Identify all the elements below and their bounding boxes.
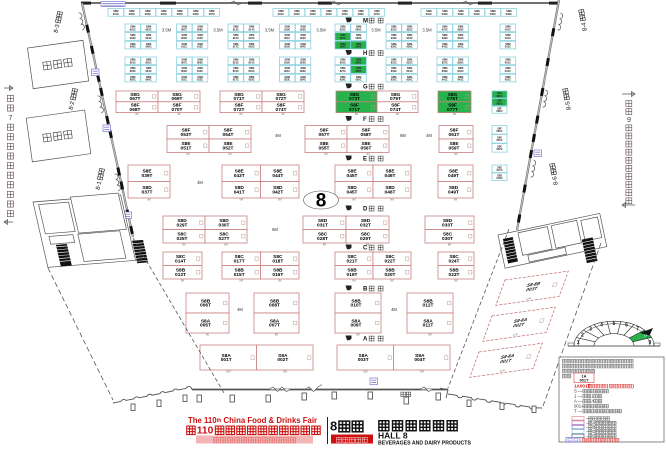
svg-text:8M: 8M: [356, 334, 359, 337]
svg-text:081C: 081C: [496, 102, 502, 106]
svg-text:008T: 008T: [269, 303, 280, 309]
svg-text:046T: 046T: [385, 173, 396, 179]
svg-text:833C: 833C: [391, 69, 397, 73]
svg-text:D: D: [363, 206, 368, 212]
svg-text:021T: 021T: [347, 258, 358, 264]
svg-text:002C: 002C: [129, 12, 135, 16]
svg-text:822C: 822C: [300, 69, 306, 73]
svg-text:8M: 8M: [135, 113, 138, 116]
svg-text:003C: 003C: [145, 12, 151, 16]
svg-text:082C: 082C: [496, 109, 502, 113]
svg-text:067T: 067T: [130, 96, 141, 102]
svg-text:6M: 6M: [272, 227, 278, 232]
svg-text:824C: 824C: [300, 78, 306, 82]
svg-text:8: 8: [330, 419, 337, 434]
svg-text:001C: 001C: [505, 45, 511, 49]
svg-text:8M: 8M: [177, 113, 180, 116]
svg-text:931C: 931C: [391, 27, 397, 31]
svg-text:5: 5: [613, 321, 616, 327]
svg-text:057T: 057T: [319, 132, 330, 138]
svg-text:033T: 033T: [442, 222, 453, 228]
svg-text:005C: 005C: [342, 12, 348, 16]
svg-text:8M: 8M: [454, 153, 457, 156]
svg-text:808C: 808C: [197, 60, 203, 64]
svg-text:8M: 8M: [278, 280, 281, 283]
svg-text:807C: 807C: [181, 60, 187, 64]
svg-text:8: 8: [316, 191, 327, 212]
svg-text:006T: 006T: [200, 303, 211, 309]
svg-text:3.5M: 3.5M: [162, 28, 172, 33]
svg-text:8M: 8M: [278, 199, 281, 202]
svg-text:923C: 923C: [284, 45, 290, 49]
svg-text:013T: 013T: [175, 272, 186, 278]
svg-text:072T: 072T: [234, 107, 245, 113]
svg-text:071T: 071T: [234, 96, 245, 102]
svg-text:3.5M: 3.5M: [316, 28, 326, 33]
svg-text:075T: 075T: [447, 96, 458, 102]
svg-text:805C: 805C: [130, 78, 136, 82]
svg-text:043T: 043T: [234, 173, 245, 179]
svg-text:046T: 046T: [385, 189, 396, 195]
svg-text:077T: 077T: [447, 107, 458, 113]
svg-text:031T: 031T: [317, 222, 328, 228]
svg-text:902C: 902C: [145, 27, 151, 31]
svg-text:816C: 816C: [248, 69, 254, 73]
svg-text:056T: 056T: [361, 145, 372, 151]
svg-text:014T: 014T: [175, 258, 186, 264]
svg-text:074T: 074T: [276, 107, 287, 113]
svg-text:8M: 8M: [240, 199, 243, 202]
svg-text:829C: 829C: [340, 78, 346, 82]
svg-text:007C: 007C: [209, 12, 215, 16]
svg-text:825C: 825C: [340, 60, 346, 64]
svg-text:929C: 929C: [340, 45, 346, 49]
svg-text:058T: 058T: [361, 132, 372, 138]
svg-text:8M: 8M: [390, 199, 393, 202]
svg-text:003C: 003C: [310, 12, 316, 16]
svg-text:011T: 011T: [423, 323, 434, 329]
svg-text:041T: 041T: [234, 189, 245, 195]
svg-text:T —: T —: [574, 409, 583, 414]
svg-text:820C: 820C: [300, 60, 306, 64]
svg-text:030T: 030T: [219, 222, 230, 228]
svg-text:012T: 012T: [423, 303, 434, 309]
svg-text:937C: 937C: [442, 27, 448, 31]
svg-text:939C: 939C: [442, 36, 448, 40]
svg-text:12M: 12M: [419, 371, 424, 374]
svg-text:941C: 941C: [442, 45, 448, 49]
svg-text:4: 4: [600, 323, 603, 329]
svg-text:072T: 072T: [276, 96, 287, 102]
svg-text:823C: 823C: [284, 78, 290, 82]
svg-text:8M: 8M: [352, 280, 355, 283]
svg-text:007C: 007C: [374, 12, 380, 16]
svg-text:836C: 836C: [406, 78, 412, 82]
svg-text:010T: 010T: [351, 303, 362, 309]
svg-text:079T: 079T: [390, 96, 401, 102]
svg-text:8M: 8M: [181, 280, 184, 283]
svg-text:045T: 045T: [347, 173, 358, 179]
svg-text:830C: 830C: [355, 78, 361, 82]
svg-text:004C: 004C: [326, 12, 332, 16]
svg-text:801C: 801C: [130, 60, 136, 64]
svg-text:8M: 8M: [448, 244, 451, 247]
svg-text:841C: 841C: [442, 78, 448, 82]
svg-text:838C: 838C: [457, 60, 463, 64]
svg-text:809C: 809C: [181, 69, 187, 73]
svg-text:073T: 073T: [349, 96, 360, 102]
svg-text:028T: 028T: [317, 236, 328, 242]
svg-text:8M: 8M: [453, 113, 456, 116]
svg-text:821C: 821C: [284, 69, 290, 73]
svg-text:8M: 8M: [275, 334, 278, 337]
svg-text:8M: 8M: [224, 244, 227, 247]
svg-text:811C: 811C: [181, 78, 187, 82]
svg-text:8M: 8M: [281, 113, 284, 116]
svg-text:A: A: [363, 336, 368, 342]
svg-text:071T: 071T: [349, 107, 360, 113]
svg-text:062C: 062C: [496, 147, 502, 151]
svg-text:914C: 914C: [248, 27, 254, 31]
svg-text:069T: 069T: [172, 96, 183, 102]
svg-text:3.5M: 3.5M: [371, 28, 381, 33]
svg-text:027T: 027T: [219, 236, 230, 242]
svg-text:001C: 001C: [505, 78, 511, 82]
svg-text:001C: 001C: [113, 12, 119, 16]
svg-text:901C: 901C: [130, 27, 136, 31]
svg-text:020T: 020T: [385, 272, 396, 278]
svg-text:936C: 936C: [406, 45, 412, 49]
svg-text:3.5M: 3.5M: [422, 28, 432, 33]
svg-text:005C: 005C: [490, 12, 496, 16]
svg-text:904C: 904C: [145, 36, 151, 40]
svg-text:8M: 8M: [240, 280, 243, 283]
svg-text:911C: 911C: [181, 45, 187, 49]
svg-text:001T: 001T: [221, 357, 232, 363]
svg-text:001C: 001C: [278, 12, 284, 16]
svg-text:3.5M: 3.5M: [213, 28, 223, 33]
svg-text:917C: 917C: [233, 45, 239, 49]
svg-text:835C: 835C: [391, 78, 397, 82]
svg-text:003C: 003C: [458, 12, 464, 16]
svg-text:6M: 6M: [400, 133, 406, 138]
svg-text:023T: 023T: [449, 272, 460, 278]
svg-text:903C: 903C: [130, 36, 136, 40]
svg-text:052T: 052T: [223, 145, 234, 151]
svg-text:8M: 8M: [182, 244, 185, 247]
svg-text:927C: 927C: [340, 36, 346, 40]
svg-text:933C: 933C: [391, 36, 397, 40]
svg-text:061T: 061T: [449, 132, 460, 138]
svg-text:915C: 915C: [233, 36, 239, 40]
svg-text:001C: 001C: [505, 60, 511, 64]
svg-text:913C: 913C: [233, 27, 239, 31]
svg-text:925C: 925C: [340, 27, 346, 31]
svg-text:029T: 029T: [177, 222, 188, 228]
svg-text:022T: 022T: [385, 258, 396, 264]
svg-text:4M: 4M: [197, 180, 203, 185]
svg-text:918C: 918C: [248, 45, 254, 49]
svg-text:935C: 935C: [391, 45, 397, 49]
svg-text:826C: 826C: [355, 60, 361, 64]
svg-text:926C: 926C: [355, 27, 361, 31]
svg-text:7: 7: [8, 113, 12, 122]
svg-text:006C: 006C: [506, 12, 512, 16]
svg-text:048C: 048C: [496, 176, 502, 180]
svg-text:919C: 919C: [284, 27, 290, 31]
svg-text:G: G: [363, 84, 368, 90]
svg-text:042T: 042T: [272, 189, 283, 195]
svg-text:938C: 938C: [457, 27, 463, 31]
svg-text:017T: 017T: [234, 258, 245, 264]
svg-text:The 110th China Food & Drinks: The 110th China Food & Drinks Fair: [188, 416, 317, 425]
svg-text:4M: 4M: [237, 307, 243, 312]
svg-text:001C: 001C: [426, 12, 432, 16]
svg-text:E: E: [363, 156, 367, 162]
svg-text:834C: 834C: [406, 69, 412, 73]
svg-text:818C: 818C: [248, 78, 254, 82]
svg-text:059T: 059T: [449, 145, 460, 151]
svg-text:813C: 813C: [233, 60, 239, 64]
svg-text:928C: 928C: [355, 36, 361, 40]
svg-text:053T: 053T: [181, 132, 192, 138]
svg-text:910C: 910C: [197, 36, 203, 40]
svg-text:4M: 4M: [275, 133, 281, 138]
svg-text:828C: 828C: [355, 69, 361, 73]
svg-text:840C: 840C: [457, 69, 463, 73]
svg-text:942C: 942C: [457, 45, 463, 49]
svg-text:842C: 842C: [457, 78, 463, 82]
svg-text:810C: 810C: [197, 69, 203, 73]
svg-text:070T: 070T: [172, 107, 183, 113]
svg-text:004T: 004T: [414, 357, 425, 363]
svg-text:H: H: [363, 51, 367, 57]
svg-text:832C: 832C: [406, 60, 412, 64]
svg-text:932C: 932C: [406, 27, 412, 31]
svg-text:004C: 004C: [474, 12, 480, 16]
svg-text:8M: 8M: [390, 280, 393, 283]
svg-text:BEVERAGES AND DAIRY PRODUCTS: BEVERAGES AND DAIRY PRODUCTS: [378, 441, 471, 447]
svg-text:908C: 908C: [197, 27, 203, 31]
svg-text:055T: 055T: [319, 145, 330, 151]
svg-text:8M: 8M: [396, 113, 399, 116]
svg-text:001T: 001T: [579, 378, 589, 383]
svg-text:005T: 005T: [200, 323, 211, 329]
svg-text:006C: 006C: [358, 12, 364, 16]
svg-text:016T: 016T: [272, 272, 283, 278]
svg-text:045T: 045T: [347, 189, 358, 195]
svg-text:030T: 030T: [442, 236, 453, 242]
svg-text:905C: 905C: [130, 45, 136, 49]
svg-text:814C: 814C: [248, 60, 254, 64]
svg-text:3.5M: 3.5M: [265, 28, 275, 33]
svg-text:002C: 002C: [294, 12, 300, 16]
svg-text:001C: 001C: [505, 27, 511, 31]
svg-text:4M: 4M: [426, 133, 432, 138]
svg-text:907C: 907C: [181, 27, 187, 31]
svg-text:8M: 8M: [454, 280, 457, 283]
svg-text:922C: 922C: [300, 36, 306, 40]
svg-text:029T: 029T: [360, 236, 371, 242]
svg-text:037T: 037T: [142, 189, 153, 195]
svg-text:831C: 831C: [391, 60, 397, 64]
svg-text:819C: 819C: [284, 60, 290, 64]
svg-text:F: F: [363, 117, 367, 123]
svg-text:003T: 003T: [358, 357, 369, 363]
svg-text:802C: 802C: [145, 60, 151, 64]
svg-text:837C: 837C: [442, 60, 448, 64]
svg-text:940C: 940C: [457, 36, 463, 40]
svg-text:007T: 007T: [269, 323, 280, 329]
svg-text:827C: 827C: [340, 69, 346, 73]
svg-text:019T: 019T: [347, 272, 358, 278]
svg-text:804C: 804C: [145, 69, 151, 73]
svg-text:001C: 001C: [505, 36, 511, 40]
svg-text:004C: 004C: [161, 12, 167, 16]
svg-text:C: C: [363, 245, 368, 251]
svg-text:HALL 8: HALL 8: [378, 431, 408, 441]
svg-text:8M: 8M: [228, 153, 231, 156]
svg-text:806C: 806C: [145, 78, 151, 82]
svg-text:8M: 8M: [206, 334, 209, 337]
svg-text:12M: 12M: [363, 371, 368, 374]
svg-text:8M: 8M: [355, 113, 358, 116]
svg-text:8M: 8M: [324, 153, 327, 156]
svg-text:001C: 001C: [505, 69, 511, 73]
svg-text:002T: 002T: [277, 357, 288, 363]
svg-text:924C: 924C: [300, 45, 306, 49]
svg-text:906C: 906C: [145, 45, 151, 49]
svg-text:2: 2: [581, 333, 584, 339]
svg-text:032T: 032T: [360, 222, 371, 228]
svg-text:8M: 8M: [186, 153, 189, 156]
svg-text:068T: 068T: [130, 107, 141, 113]
svg-text:039T: 039T: [142, 173, 153, 179]
svg-text:061C: 061C: [496, 138, 502, 142]
svg-text:817C: 817C: [233, 78, 239, 82]
svg-text:930C: 930C: [355, 45, 361, 49]
svg-text:110: 110: [197, 426, 214, 437]
svg-text:M: M: [363, 18, 368, 24]
svg-text:909C: 909C: [181, 36, 187, 40]
svg-text:002C: 002C: [442, 12, 448, 16]
svg-text:B: B: [363, 286, 368, 292]
svg-text:934C: 934C: [406, 36, 412, 40]
svg-text:916C: 916C: [248, 36, 254, 40]
svg-text:005C: 005C: [177, 12, 183, 16]
svg-text:920C: 920C: [300, 27, 306, 31]
svg-text:024T: 024T: [449, 258, 460, 264]
svg-text:8M: 8M: [428, 334, 431, 337]
svg-text:9: 9: [627, 115, 631, 124]
svg-text:009T: 009T: [351, 323, 362, 329]
svg-text:006C: 006C: [193, 12, 199, 16]
svg-text:074T: 074T: [390, 107, 401, 113]
svg-text:044T: 044T: [272, 173, 283, 179]
svg-text:8M: 8M: [454, 199, 457, 202]
svg-text:060C: 060C: [496, 129, 502, 133]
svg-text:815C: 815C: [233, 69, 239, 73]
svg-text:047C: 047C: [496, 168, 502, 172]
svg-text:025T: 025T: [177, 236, 188, 242]
svg-text:8M: 8M: [147, 199, 150, 202]
svg-text:12M: 12M: [282, 371, 287, 374]
svg-text:015T: 015T: [234, 272, 245, 278]
svg-text:051T: 051T: [181, 145, 192, 151]
svg-text:4M: 4M: [391, 307, 397, 312]
svg-text:921C: 921C: [284, 36, 290, 40]
svg-text:8M: 8M: [323, 244, 326, 247]
svg-text:8M: 8M: [239, 113, 242, 116]
svg-text:018T: 018T: [272, 258, 283, 264]
svg-text:812C: 812C: [197, 78, 203, 82]
svg-text:912C: 912C: [197, 45, 203, 49]
svg-text:839C: 839C: [442, 69, 448, 73]
svg-text:8M: 8M: [352, 199, 355, 202]
svg-text:803C: 803C: [130, 69, 136, 73]
svg-text:054T: 054T: [223, 132, 234, 138]
svg-text:080C: 080C: [496, 94, 502, 98]
svg-text:12M: 12M: [226, 371, 231, 374]
svg-text:049T: 049T: [448, 189, 459, 195]
svg-text:049T: 049T: [448, 173, 459, 179]
